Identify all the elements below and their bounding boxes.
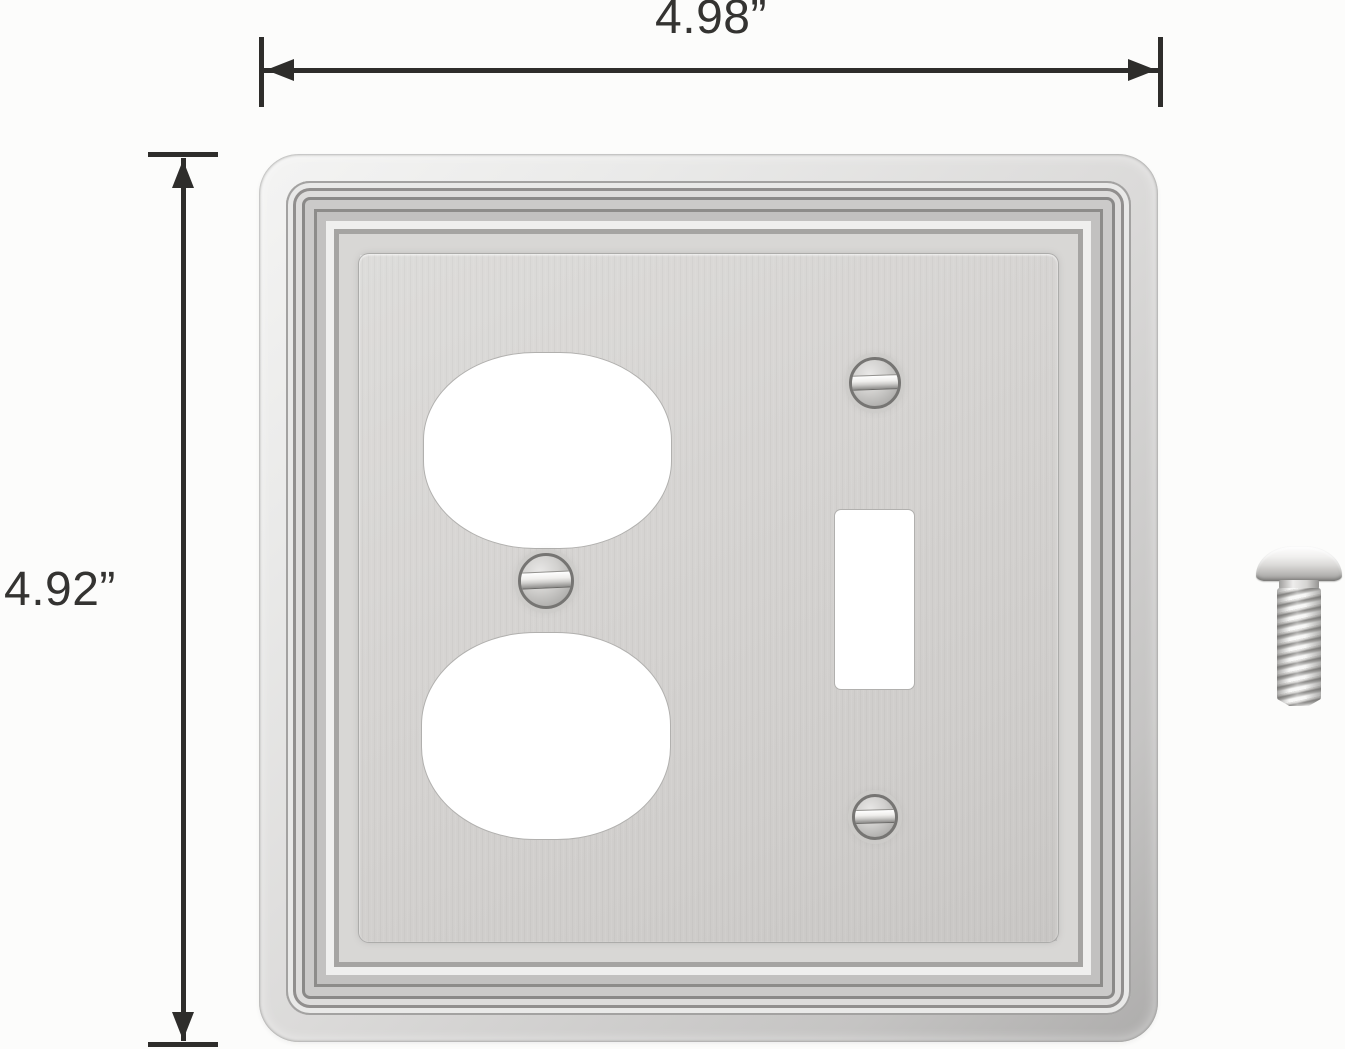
product-dimension-diagram: 4.98” 4.92” bbox=[0, 0, 1345, 1049]
height-dimension-label: 4.92” bbox=[4, 566, 116, 614]
screw-slot-icon bbox=[849, 374, 901, 391]
width-dimension-line bbox=[262, 68, 1160, 73]
mounting-screw-neck bbox=[1279, 580, 1319, 589]
duplex-center-screw bbox=[518, 553, 574, 609]
mounting-screw-head bbox=[1256, 546, 1342, 581]
toggle-switch-opening bbox=[834, 509, 915, 690]
arrowhead-up-icon bbox=[172, 160, 194, 188]
mounting-screw-threaded-shank bbox=[1277, 588, 1321, 706]
width-dimension-left-tick bbox=[259, 37, 264, 107]
plate-inner-panel bbox=[359, 254, 1058, 942]
toggle-top-screw bbox=[849, 357, 901, 409]
toggle-bottom-screw bbox=[852, 794, 898, 840]
arrowhead-left-icon bbox=[266, 59, 294, 81]
arrowhead-right-icon bbox=[1128, 59, 1156, 81]
height-dimension-line bbox=[181, 158, 186, 1041]
width-dimension-right-tick bbox=[1158, 37, 1163, 107]
wall-plate bbox=[259, 154, 1158, 1042]
duplex-outlet-opening-bottom bbox=[421, 632, 671, 840]
height-dimension-bottom-tick bbox=[148, 1042, 218, 1047]
screw-slot-icon bbox=[518, 570, 574, 589]
width-dimension-label: 4.98” bbox=[655, 0, 767, 42]
duplex-outlet-opening-top bbox=[423, 352, 672, 549]
arrowhead-down-icon bbox=[172, 1012, 194, 1040]
screw-slot-icon bbox=[852, 809, 898, 824]
mounting-screw bbox=[1256, 546, 1342, 708]
height-dimension-top-tick bbox=[148, 152, 218, 157]
